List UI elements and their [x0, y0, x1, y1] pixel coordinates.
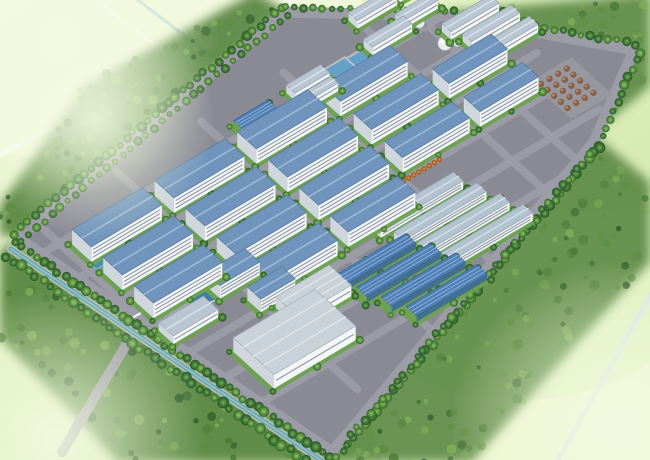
tree — [226, 124, 232, 130]
tank-highlight — [556, 72, 559, 75]
canal-tree — [225, 405, 233, 413]
tank-highlight — [576, 90, 579, 93]
tank-highlight — [565, 106, 568, 109]
boundary-tree — [619, 80, 629, 90]
forest-tree — [578, 199, 588, 209]
forest-tree — [227, 32, 231, 36]
forest-tree — [580, 14, 585, 19]
boundary-tree — [373, 402, 380, 409]
forest-tree — [377, 429, 382, 434]
boundary-tree — [614, 36, 621, 43]
canal-tree — [33, 254, 41, 262]
boundary-tree — [606, 116, 614, 124]
tree — [388, 312, 394, 318]
boundary-tree — [394, 378, 401, 385]
forest-tree — [536, 268, 542, 274]
canal-tree — [239, 395, 247, 403]
forest-tree — [616, 226, 621, 231]
forest-tree — [578, 235, 588, 245]
boundary-tree — [432, 329, 440, 337]
canal-tree — [274, 418, 284, 428]
canal-tree — [52, 268, 61, 277]
boundary-tree — [594, 35, 603, 44]
forest-tree — [492, 297, 497, 302]
boundary-tree — [586, 150, 594, 158]
forest-tree — [379, 444, 389, 454]
boundary-tree — [337, 6, 343, 12]
forest-tree — [618, 192, 622, 196]
tank-highlight — [554, 83, 557, 86]
canal-tree — [247, 419, 255, 427]
boundary-tree — [244, 43, 252, 51]
forest-tree — [215, 423, 219, 427]
forest-tree — [427, 414, 433, 420]
tree — [64, 241, 71, 248]
forest-tree — [220, 418, 224, 422]
boundary-tree — [633, 56, 641, 64]
tree — [218, 313, 227, 322]
boundary-tree — [270, 9, 279, 18]
forest-tree — [601, 214, 606, 219]
canal-tree — [203, 388, 212, 397]
boundary-tree — [610, 108, 617, 115]
tree — [95, 269, 102, 276]
boundary-tree — [425, 339, 433, 347]
forest-tree — [504, 288, 510, 294]
forest-tree — [632, 251, 642, 261]
boundary-tree — [604, 35, 612, 43]
forest-tree — [374, 447, 380, 453]
forest-tree — [3, 211, 9, 217]
canal-tree — [319, 448, 326, 455]
boundary-tree — [418, 346, 426, 354]
forest-tree — [7, 219, 12, 224]
boundary-tree — [346, 431, 354, 439]
orange-tree — [437, 157, 442, 162]
boundary-tree — [615, 98, 624, 107]
tank-highlight — [539, 82, 542, 85]
boundary-tree — [398, 371, 406, 379]
tree — [356, 336, 364, 344]
orange-tree — [416, 169, 421, 174]
forest-tree — [570, 247, 578, 255]
forest-tree — [600, 180, 609, 189]
tree — [126, 297, 135, 306]
boundary-tree — [236, 40, 244, 48]
orange-tree — [406, 175, 411, 180]
forest-tree — [564, 236, 569, 241]
tank-highlight — [574, 101, 577, 104]
forest-tree — [416, 400, 421, 405]
tree — [149, 318, 155, 324]
forest-tree — [6, 291, 12, 297]
tree — [362, 301, 370, 309]
boundary-tree — [552, 188, 561, 197]
tank-highlight — [591, 91, 594, 94]
forest-tree — [611, 14, 616, 19]
tank-highlight — [585, 85, 588, 88]
tree — [270, 388, 277, 395]
forest-tree — [581, 3, 585, 7]
boundary-tree — [447, 312, 457, 322]
tree — [455, 38, 463, 46]
tree — [398, 2, 404, 8]
tree — [538, 28, 546, 36]
tree — [279, 90, 285, 96]
boundary-tree — [18, 238, 25, 245]
tree — [215, 298, 223, 306]
forest-tree — [391, 409, 398, 416]
forest-tree — [421, 426, 428, 433]
boundary-tree — [282, 3, 289, 10]
forest-tree — [231, 442, 238, 449]
tree — [87, 262, 93, 268]
orange-tree — [411, 172, 416, 177]
forest-tree — [539, 227, 545, 233]
boundary-tree — [329, 6, 335, 12]
industrial-park-aerial-render — [0, 0, 650, 460]
orange-tree — [421, 166, 426, 171]
tree — [399, 310, 405, 316]
boundary-tree — [450, 6, 459, 15]
forest-tree — [593, 2, 598, 7]
tank-highlight — [561, 89, 564, 92]
tank-highlight — [565, 66, 568, 69]
forest-tree — [639, 0, 648, 9]
boundary-tree — [262, 16, 269, 23]
forest-tree — [512, 269, 519, 276]
tree — [435, 29, 442, 36]
boundary-tree — [618, 90, 626, 98]
forest-tree — [226, 438, 232, 444]
forest-tree — [599, 7, 605, 13]
forest-tree — [562, 220, 571, 229]
forest-tree — [634, 30, 639, 35]
tree — [446, 38, 455, 47]
boundary-tree — [253, 38, 261, 46]
forest-tree — [599, 156, 604, 161]
boundary-tree — [230, 58, 236, 64]
aerial-scene-canvas — [0, 0, 650, 460]
boundary-tree — [248, 27, 257, 36]
canal-tree — [211, 394, 219, 402]
forest-tree — [600, 21, 608, 29]
boundary-tree — [221, 64, 230, 73]
forest-tree — [552, 257, 558, 263]
forest-tree — [455, 335, 459, 339]
tree — [118, 290, 125, 297]
boundary-tree — [277, 18, 284, 25]
forest-tree — [616, 166, 625, 175]
forest-tree — [610, 2, 619, 11]
boundary-tree — [551, 26, 559, 34]
canal-tree — [40, 276, 49, 285]
boundary-tree — [291, 4, 298, 11]
forest-tree — [237, 10, 243, 16]
boundary-tree — [269, 24, 276, 31]
canal-tree — [255, 423, 266, 434]
tree — [240, 297, 246, 303]
boundary-tree — [261, 33, 268, 40]
forest-tree — [363, 451, 369, 457]
canal-tree — [216, 378, 227, 389]
boundary-tree — [415, 353, 421, 359]
boundary-tree — [560, 27, 567, 34]
forest-tree — [207, 412, 216, 421]
forest-tree — [571, 208, 580, 217]
tree — [413, 28, 419, 34]
tree — [538, 87, 547, 96]
canal-tree — [47, 283, 54, 290]
boundary-tree — [578, 32, 584, 38]
canal-tree — [183, 354, 192, 363]
forest-tree — [222, 40, 228, 46]
tank-highlight — [563, 78, 566, 81]
boundary-tree — [10, 230, 19, 239]
tree — [269, 305, 275, 311]
boundary-tree — [25, 231, 32, 238]
boundary-tree — [353, 424, 360, 431]
canal-tree — [27, 248, 35, 256]
forest-tree — [603, 240, 610, 247]
forest-tree — [463, 312, 469, 318]
tree — [413, 322, 419, 328]
boundary-tree — [299, 4, 308, 13]
canal-tree — [232, 388, 241, 397]
orange-tree — [432, 160, 437, 165]
forest-tree — [636, 75, 646, 85]
tree — [376, 237, 384, 245]
forest-tree — [642, 195, 649, 202]
boundary-tree — [17, 223, 25, 231]
boundary-tree — [602, 125, 609, 132]
tree — [226, 349, 232, 355]
boundary-tree — [237, 50, 245, 58]
boundary-tree — [573, 165, 581, 173]
tree — [470, 129, 477, 136]
tree — [353, 28, 359, 34]
boundary-tree — [440, 323, 447, 330]
tree — [438, 4, 446, 12]
boundary-tree — [568, 28, 577, 37]
tree — [374, 300, 381, 307]
boundary-tree — [544, 199, 552, 207]
boundary-tree — [600, 133, 606, 139]
boundary-tree — [500, 250, 510, 260]
forest-tree — [436, 353, 444, 361]
tree — [256, 312, 263, 319]
orange-tree — [427, 163, 432, 168]
tree — [339, 87, 347, 95]
canal-tree — [258, 406, 269, 417]
forest-tree — [608, 231, 616, 239]
boundary-tree — [257, 22, 266, 31]
tree — [341, 18, 348, 25]
forest-tree — [227, 18, 234, 25]
tank-highlight — [578, 78, 581, 81]
tank-highlight — [569, 84, 572, 87]
forest-tree — [355, 448, 361, 454]
boundary-tree — [389, 384, 396, 391]
boundary-tree — [361, 416, 370, 425]
forest-tree — [246, 15, 255, 24]
tank-highlight — [559, 100, 562, 103]
boundary-tree — [379, 395, 387, 403]
canal-tree — [30, 273, 39, 282]
forest-tree — [622, 183, 630, 191]
tree — [351, 292, 359, 300]
boundary-tree — [631, 41, 640, 50]
tree — [416, 204, 423, 211]
forest-tree — [542, 222, 547, 227]
forest-tree — [552, 237, 557, 242]
forest-tree — [597, 232, 606, 241]
boundary-tree — [284, 12, 291, 19]
forest-tree — [594, 199, 603, 208]
tank-highlight — [583, 96, 586, 99]
tank-highlight — [571, 72, 574, 75]
boundary-tree — [511, 239, 517, 245]
boundary-tree — [309, 4, 317, 12]
boundary-tree — [585, 31, 595, 41]
tree — [344, 247, 351, 254]
boundary-tree — [622, 37, 631, 46]
boundary-tree — [460, 300, 467, 307]
boundary-tree — [343, 442, 350, 449]
tank-highlight — [567, 95, 570, 98]
forest-tree — [612, 176, 619, 183]
tank-highlight — [552, 94, 555, 97]
tree — [533, 217, 540, 224]
forest-tree — [397, 419, 406, 428]
boundary-tree — [228, 46, 236, 54]
tree — [487, 276, 495, 284]
boundary-tree — [408, 363, 415, 370]
tree — [338, 251, 346, 259]
tank-highlight — [547, 77, 550, 80]
tree — [222, 273, 230, 281]
boundary-tree — [559, 180, 568, 189]
boundary-tree — [538, 206, 545, 213]
boundary-tree — [492, 262, 498, 268]
tree — [356, 43, 364, 51]
forest-tree — [568, 18, 576, 26]
canal-tree — [275, 440, 287, 452]
canal-tree — [1, 252, 11, 262]
boundary-tree — [318, 5, 326, 13]
forest-tree — [405, 417, 411, 423]
forest-tree — [424, 399, 429, 404]
